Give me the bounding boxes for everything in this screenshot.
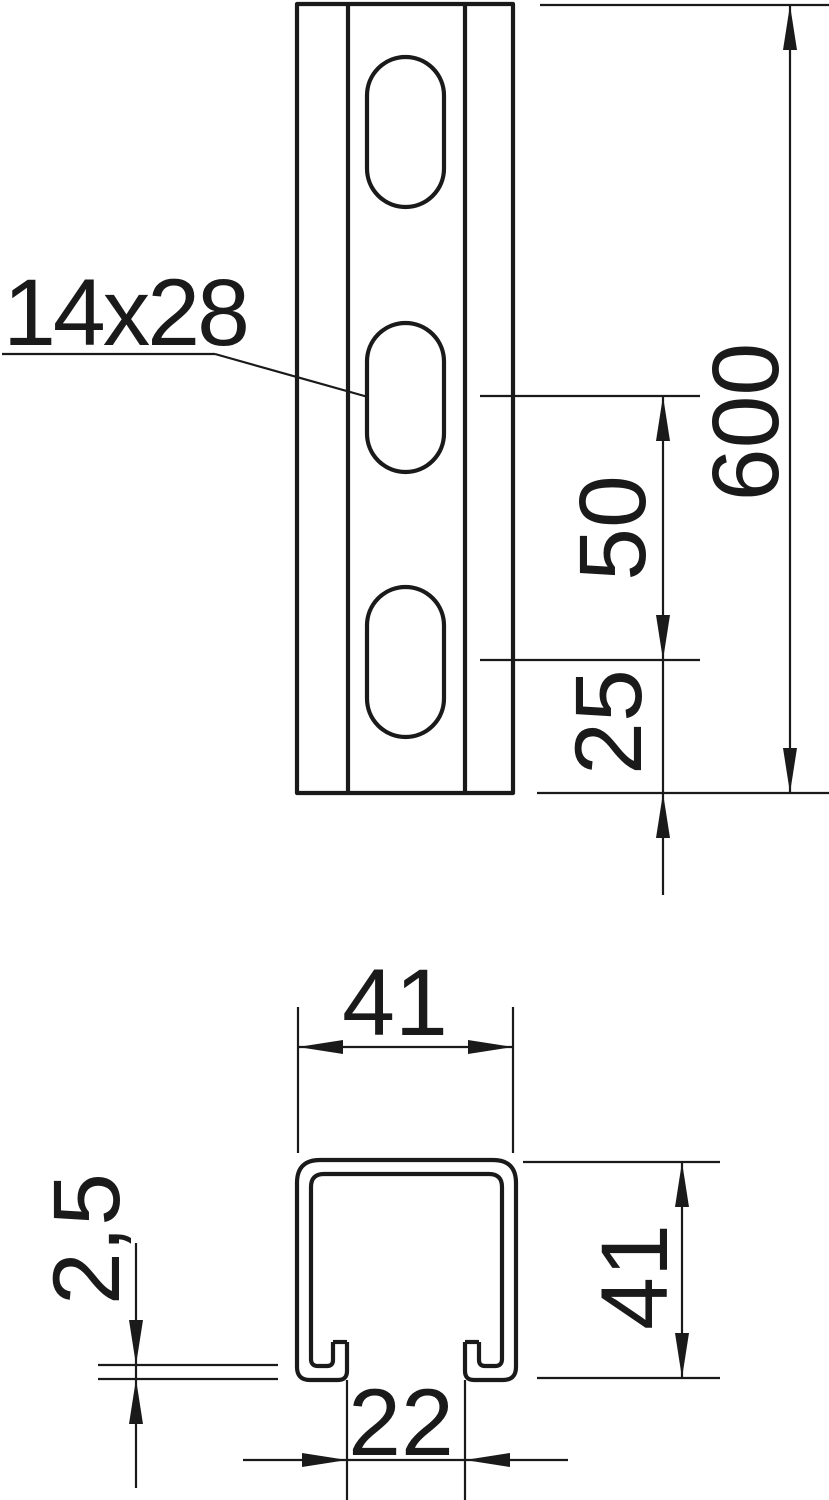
- dim-slot-pitch: 50: [560, 475, 666, 581]
- arrowhead-down-icon: [656, 615, 670, 660]
- dim-slot-opening: 22: [348, 1370, 454, 1476]
- technical-drawing-canvas: 14x28 50 25 600 41: [0, 0, 829, 1500]
- dim-end-offset: 25: [556, 669, 662, 775]
- slot-middle: [367, 323, 444, 472]
- dim-outer-height: 41: [582, 1224, 688, 1330]
- rail-outline: [297, 4, 513, 793]
- arrowhead-up-icon: [656, 793, 670, 838]
- dim-total-length: 600: [693, 343, 799, 502]
- arrowhead-up-icon: [675, 1162, 689, 1207]
- arrowhead-down-icon: [675, 1333, 689, 1378]
- slot-top: [367, 57, 444, 207]
- arrowhead-right-icon: [302, 1453, 347, 1467]
- arrowhead-down-icon: [783, 748, 797, 793]
- arrowhead-up-icon: [129, 1379, 143, 1424]
- profile-outer-contour: [297, 1160, 516, 1380]
- arrowhead-left-icon: [465, 1453, 510, 1467]
- arrowhead-down-icon: [129, 1320, 143, 1365]
- section-view: 41 41 2,5 22: [34, 950, 720, 1500]
- front-view: 14x28 50 25 600: [2, 4, 829, 895]
- profile-inner-contour: [311, 1174, 502, 1366]
- slot-bottom: [367, 587, 444, 737]
- arrowhead-up-icon: [656, 396, 670, 441]
- arrowhead-right-icon: [468, 1040, 513, 1054]
- arrowhead-left-icon: [298, 1040, 343, 1054]
- dim-material-thickness: 2,5: [34, 1173, 140, 1305]
- drawing-page: 14x28 50 25 600 41: [0, 0, 829, 1500]
- arrowhead-up-icon: [783, 5, 797, 50]
- slot-size-label: 14x28: [3, 260, 247, 366]
- dim-outer-width: 41: [342, 950, 448, 1056]
